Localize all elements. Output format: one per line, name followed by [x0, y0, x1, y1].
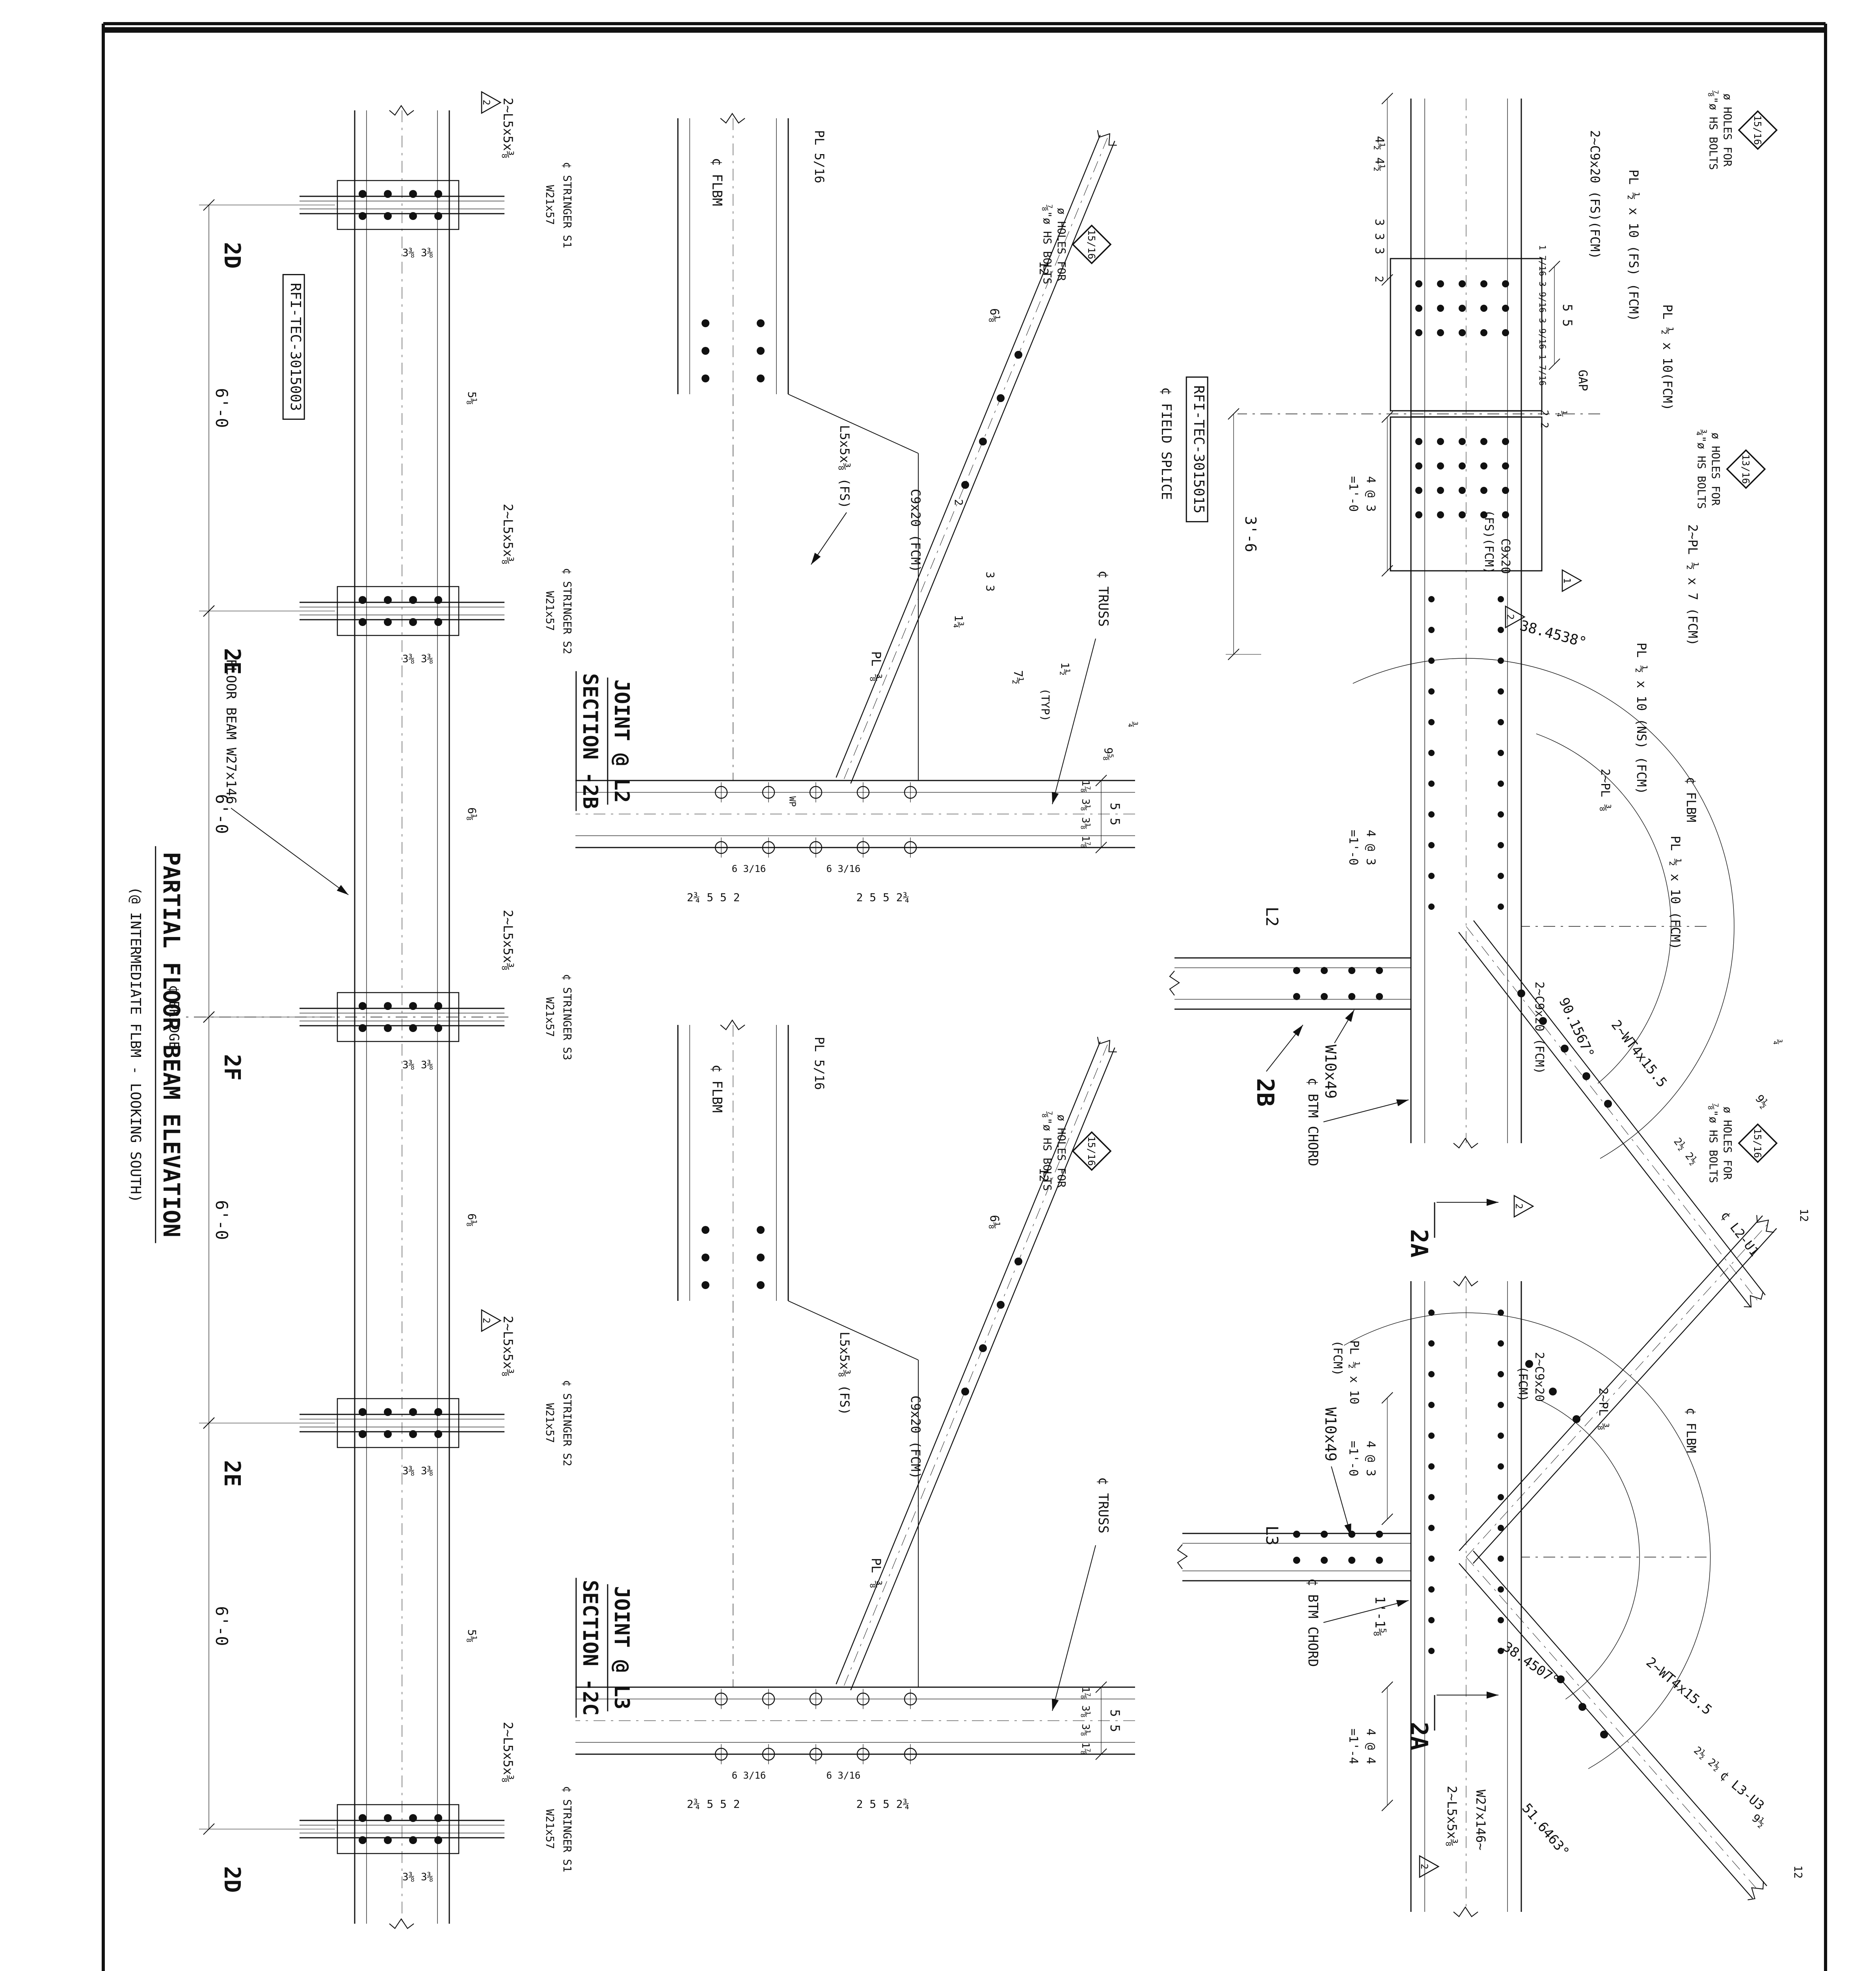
- bolt-icon: [1428, 1371, 1435, 1377]
- break-mark-icon: [720, 114, 745, 123]
- drawing-label: W10x49: [1322, 1407, 1339, 1461]
- bolt-icon: [359, 212, 367, 220]
- bolt-icon: [1428, 596, 1435, 602]
- bolt-icon: [1502, 487, 1509, 494]
- drawing-label: 51.6463°: [1519, 1800, 1572, 1860]
- drawing-line: [851, 141, 1115, 784]
- break-mark-icon: [389, 106, 414, 115]
- drawing-label: FLOOR BEAM W27x146: [223, 659, 239, 804]
- bolt-icon: [409, 1002, 417, 1010]
- drawing-label: 3⅜ 3⅜: [402, 653, 433, 665]
- bolt-icon: [359, 1024, 367, 1032]
- drawing-label: 2 2: [1538, 410, 1550, 428]
- bolt-icon: [1600, 1731, 1608, 1738]
- drawing-label: 4 @ 4: [1364, 1729, 1377, 1764]
- drawing-label: 6⅛: [987, 1215, 1001, 1229]
- bolt-icon: [702, 374, 709, 382]
- bolt-icon: [1428, 719, 1435, 725]
- bolt-icon: [1428, 811, 1435, 818]
- drawing-label: W21x57: [543, 997, 556, 1037]
- leader-arrowhead-icon: [337, 885, 348, 895]
- drawing-label: 1'-1⅝: [1372, 1596, 1388, 1636]
- bolt-icon: [1502, 305, 1509, 312]
- drawing-label: 1⅞ 3⅛ 3⅛ 1⅞: [1079, 1687, 1091, 1755]
- drawing-line: [1459, 1216, 1762, 1551]
- bolt-icon: [1502, 329, 1509, 336]
- drawing-label: C9x20 (FCM): [908, 1395, 923, 1479]
- drawing-label: 2¾ 5 5 2: [687, 891, 740, 904]
- drawing-label: PL ½ x 10 (NS) (FCM): [1634, 643, 1649, 794]
- drawing-label: 6 3/16: [826, 1770, 861, 1781]
- bolt-icon: [434, 618, 442, 626]
- drawing-label: =1'-0: [1346, 1441, 1360, 1476]
- drawing-label: 2~L5x5x⅜: [501, 1722, 516, 1783]
- break-mark-icon: [1178, 1544, 1187, 1569]
- drawing-label: ¢ FLBM: [709, 1064, 725, 1113]
- drawing-label: 13/16: [1740, 454, 1751, 484]
- drawing-label: 2~L5x5x⅜: [1444, 1786, 1459, 1846]
- bolt-icon: [1502, 280, 1509, 287]
- bolt-icon: [1415, 487, 1422, 494]
- drawing-line: [1466, 1222, 1770, 1557]
- leader-arrowhead-icon: [1396, 1099, 1409, 1106]
- drawing-label: 2~C9x20 (FCM): [1532, 982, 1546, 1074]
- break-mark-icon: [1454, 1276, 1478, 1286]
- bolt-icon: [1480, 487, 1487, 494]
- drawing-label: 5⅛: [465, 391, 478, 405]
- bolt-icon: [409, 1408, 417, 1416]
- drawing-label: SECTION -2B: [578, 673, 602, 809]
- drawing-label: ¢ TRUSS: [1095, 570, 1111, 627]
- bolt-icon: [359, 190, 367, 198]
- break-mark-icon: [1454, 1907, 1478, 1917]
- bolt-icon: [1502, 438, 1509, 445]
- bolt-icon: [1348, 967, 1355, 974]
- bolt-icon: [1498, 1586, 1504, 1593]
- bolt-icon: [1498, 1463, 1504, 1470]
- bolt-icon: [1428, 750, 1435, 756]
- bolt-icon: [1321, 967, 1328, 974]
- bolt-icon: [1459, 329, 1466, 336]
- drawing-label: 1: [1561, 578, 1573, 583]
- bolt-icon: [1498, 719, 1504, 725]
- bolt-icon: [434, 1408, 442, 1416]
- leader-arrowhead-icon: [1487, 1692, 1498, 1699]
- drawing-label: 5⅛: [465, 1629, 478, 1643]
- bolt-icon: [1293, 967, 1300, 974]
- bolt-icon: [1415, 305, 1422, 312]
- drawing-label: 3'-6: [1242, 516, 1259, 552]
- bolt-icon: [997, 394, 1005, 402]
- bolt-icon: [1498, 842, 1504, 848]
- drawing-label: 6'-0: [212, 1606, 231, 1646]
- drawing-label: WP: [787, 796, 797, 807]
- bolt-icon: [359, 596, 367, 604]
- bolt-icon: [1415, 329, 1422, 336]
- drawing-label: L3: [1262, 1526, 1282, 1546]
- drawing-label: ¢ BTM CHORD: [1305, 1077, 1321, 1166]
- drawing-label: (FS)(FCM): [1482, 510, 1496, 574]
- bolt-icon: [1428, 1494, 1435, 1500]
- drawing-label: 2¾ 5 5 2: [687, 1798, 740, 1811]
- drawing-label: 9⅝: [1102, 747, 1115, 761]
- drawing-label: W21x57: [543, 185, 556, 225]
- drawing-line: [788, 394, 918, 453]
- drawing-label: L2: [1262, 907, 1282, 927]
- bolt-icon: [1428, 1310, 1435, 1316]
- drawing-label: PL ½ x 10 (FS) (FCM): [1626, 170, 1641, 321]
- drawing-rect: [337, 1805, 459, 1854]
- drawing-label: C9x20 (FCM): [908, 489, 923, 572]
- bolt-icon: [1498, 1525, 1504, 1531]
- drawing-label: 9½: [1753, 1092, 1771, 1111]
- drawing-label: PL 5/16: [812, 1037, 827, 1090]
- bolt-icon: [1459, 280, 1466, 287]
- leader-arrowhead-icon: [811, 553, 821, 564]
- drawing-label: ¢ STRINGER S2: [561, 568, 574, 654]
- drawing-label: 2~C9x20: [1532, 1352, 1546, 1402]
- bolt-icon: [702, 1281, 709, 1289]
- bolt-icon: [1428, 1463, 1435, 1470]
- drawing-sheet: 15/16ø HOLES FOR⅞"ø HS BOLTS15/16ø HOLES…: [0, 0, 1876, 1971]
- drawing-label: W21x57: [543, 1403, 556, 1443]
- drawing-label: (TYP): [1039, 688, 1052, 721]
- drawing-label: 12: [1792, 1865, 1805, 1879]
- drawing-label: RFI-TEC-3015015: [1191, 385, 1207, 513]
- drawing-canvas: 15/16ø HOLES FOR⅞"ø HS BOLTS15/16ø HOLES…: [0, 0, 1876, 1971]
- drawing-label: ¾: [1772, 1039, 1783, 1045]
- bolt-icon: [1293, 1531, 1300, 1538]
- bolt-icon: [961, 481, 969, 489]
- bolt-icon: [384, 1430, 392, 1438]
- drawing-label: ¢ STRINGER S2: [561, 1380, 574, 1466]
- bolt-icon: [1517, 989, 1525, 997]
- bolt-icon: [1549, 1388, 1557, 1395]
- bolt-icon: [1502, 511, 1509, 518]
- drawing-label: W21x57: [543, 1809, 556, 1849]
- drawing-rect: [337, 587, 459, 635]
- bolt-icon: [702, 1254, 709, 1261]
- bolt-icon: [1428, 1340, 1435, 1347]
- drawing-line: [1052, 1545, 1096, 1711]
- drawing-label: 3 3: [984, 572, 997, 592]
- bolt-icon: [1604, 1100, 1612, 1108]
- bolt-icon: [359, 1430, 367, 1438]
- drawing-label: (FCM): [1516, 1366, 1530, 1402]
- bolt-icon: [702, 347, 709, 355]
- drawing-label: ø HOLES FOR: [1721, 93, 1734, 167]
- drawing-label: ¾"ø HS BOLTS: [1695, 429, 1708, 509]
- break-mark-icon: [389, 1919, 414, 1928]
- drawing-label: 3⅜ 3⅜: [402, 1059, 433, 1071]
- bolt-icon: [1321, 1557, 1328, 1564]
- drawing-label: ø HOLES FOR: [1709, 432, 1722, 506]
- bolt-icon: [409, 190, 417, 198]
- drawing-label: 2½ 2½: [1692, 1744, 1723, 1773]
- bolt-icon: [1459, 487, 1466, 494]
- bolt-icon: [434, 190, 442, 198]
- bolt-icon: [384, 212, 392, 220]
- bolt-icon: [384, 618, 392, 626]
- bolt-icon: [1498, 1433, 1504, 1439]
- bolt-icon: [1321, 993, 1328, 1000]
- leader-arrowhead-icon: [1052, 792, 1059, 804]
- drawing-label: PL 5/16: [812, 130, 827, 183]
- break-mark-icon: [1744, 1878, 1767, 1903]
- bolt-icon: [1498, 750, 1504, 756]
- drawing-label: RFI-TEC-3015003: [287, 283, 303, 411]
- drawing-label: 2D: [219, 1866, 245, 1893]
- bolt-icon: [1498, 1402, 1504, 1408]
- drawing-label: 1½: [1059, 662, 1072, 676]
- bolt-icon: [1437, 511, 1444, 518]
- drawing-label: W21x57: [543, 591, 556, 631]
- drawing-label: 2: [481, 1318, 492, 1323]
- drawing-label: ¢ FLBM: [1684, 1407, 1699, 1453]
- bolt-icon: [1498, 873, 1504, 879]
- drawing-label: ⅞"ø HS BOLTS: [1707, 1103, 1720, 1183]
- drawing-label: ⅞"ø HS BOLTS: [1707, 90, 1720, 170]
- drawing-label: 4½ 4½: [1372, 136, 1386, 171]
- drawing-label: ¢ TRUSS: [1095, 1477, 1111, 1533]
- drawing-rect: [337, 181, 459, 229]
- drawing-label: SECTION -2C: [578, 1580, 602, 1716]
- drawing-label: ¢ STRINGER S1: [561, 162, 574, 248]
- drawing-label: ¢ L2-U1: [1718, 1208, 1762, 1259]
- drawing-label: L5x5x⅜ (FS): [837, 425, 852, 509]
- rotated-sheet-container: 15/16ø HOLES FOR⅞"ø HS BOLTS15/16ø HOLES…: [0, 0, 1876, 1971]
- bolt-icon: [1428, 1586, 1435, 1593]
- bolt-icon: [1459, 305, 1466, 312]
- drawing-label: 2~WT4x15.5: [1643, 1654, 1715, 1718]
- drawing-label: 6 3/16: [732, 863, 766, 874]
- bolt-icon: [1437, 280, 1444, 287]
- drawing-label: (@ INTERMEDIATE FLBM - LOOKING SOUTH): [127, 887, 143, 1203]
- bolt-icon: [1428, 1648, 1435, 1654]
- bolt-icon: [1348, 1557, 1355, 1564]
- bolt-icon: [1480, 462, 1487, 469]
- bolt-icon: [961, 1388, 969, 1395]
- drawing-label: 15/16: [1086, 229, 1097, 259]
- drawing-label: 38.4507°: [1500, 1639, 1562, 1689]
- drawing-label: 2~L5x5x⅜: [501, 504, 516, 564]
- drawing-label: 4 @ 3: [1364, 1441, 1377, 1476]
- drawing-label: 3⅜ 3⅜: [402, 1465, 433, 1477]
- drawing-label: 3 3 3: [1372, 219, 1386, 254]
- drawing-label: 6 3/16: [826, 863, 861, 874]
- drawing-line: [1323, 1600, 1409, 1623]
- bolt-icon: [1014, 351, 1022, 359]
- leader-arrowhead-icon: [1293, 1025, 1303, 1036]
- bolt-icon: [1415, 438, 1422, 445]
- bolt-icon: [757, 319, 765, 327]
- drawing-label: 2: [1419, 1864, 1430, 1869]
- bolt-icon: [1498, 1310, 1504, 1316]
- drawing-label: 5 5: [1107, 803, 1122, 825]
- bolt-icon: [1480, 329, 1487, 336]
- drawing-label: 2: [952, 499, 965, 506]
- drawing-label: ¢ L3-U3: [1717, 1768, 1767, 1813]
- bolt-icon: [1498, 1556, 1504, 1562]
- bolt-icon: [1459, 511, 1466, 518]
- bolt-icon: [1480, 305, 1487, 312]
- drawing-line: [1473, 1551, 1767, 1886]
- drawing-label: 2~L5x5x⅜: [501, 98, 516, 158]
- bolt-icon: [409, 1836, 417, 1844]
- bolt-icon: [1428, 1525, 1435, 1531]
- bolt-icon: [1578, 1703, 1586, 1711]
- bolt-icon: [384, 596, 392, 604]
- bolt-icon: [1428, 627, 1435, 633]
- bolt-icon: [1573, 1415, 1580, 1423]
- drawing-label: ¼: [1556, 411, 1569, 417]
- bolt-icon: [1582, 1072, 1590, 1080]
- bolt-icon: [1428, 1617, 1435, 1623]
- drawing-label: 6⅛: [987, 308, 1001, 322]
- bolt-icon: [1480, 438, 1487, 445]
- drawing-label: 2~WT4x15.5: [1608, 1017, 1670, 1090]
- bolt-icon: [1502, 462, 1509, 469]
- break-mark-icon: [1454, 1138, 1478, 1148]
- bolt-icon: [409, 1024, 417, 1032]
- drawing-label: 5 5: [1107, 1709, 1122, 1732]
- bolt-icon: [979, 438, 987, 445]
- drawing-label: 1 7/16 3 9/16 3 9/16 1 7/16: [1537, 245, 1547, 386]
- drawing-label: 4 @ 3: [1364, 476, 1377, 512]
- bolt-icon: [409, 212, 417, 220]
- drawing-label: ø HOLES FOR: [1721, 1107, 1734, 1180]
- bolt-icon: [409, 1814, 417, 1822]
- drawing-label: 2: [1373, 276, 1386, 283]
- bolt-icon: [434, 1430, 442, 1438]
- drawing-label: 2A: [1405, 1229, 1433, 1257]
- bolt-icon: [1428, 1402, 1435, 1408]
- drawing-label: 2~C9x20 (FS)(FCM): [1588, 130, 1602, 259]
- bolt-icon: [757, 1254, 765, 1261]
- drawing-label: 7½: [1011, 670, 1025, 684]
- bolt-icon: [1498, 1494, 1504, 1500]
- bolt-icon: [434, 1002, 442, 1010]
- drawing-label: 2: [481, 100, 492, 105]
- bolt-icon: [359, 1002, 367, 1010]
- bolt-icon: [702, 319, 709, 327]
- drawing-label: ø HOLES FOR: [1055, 208, 1068, 281]
- leader-arrowhead-icon: [1345, 1010, 1354, 1022]
- drawing-label: 2~L5x5x⅜: [501, 910, 516, 971]
- drawing-label: 1¾: [952, 615, 965, 628]
- drawing-label: 2E: [219, 1460, 245, 1487]
- drawing-label: PL ⅜: [869, 1558, 884, 1588]
- bolt-icon: [359, 1836, 367, 1844]
- drawing-label: 6⅛: [465, 1213, 478, 1227]
- bolt-icon: [384, 1814, 392, 1822]
- drawing-label: 4 @ 3: [1364, 830, 1377, 865]
- drawing-label: 6'-0: [212, 1200, 231, 1240]
- drawing-label: ¢ FLBM: [1684, 777, 1699, 822]
- drawing-label: 5 5: [1560, 304, 1575, 327]
- bolt-icon: [1428, 904, 1435, 910]
- drawing-label: 2D: [219, 242, 245, 268]
- drawing-label: 2 5 5 2¾: [856, 1798, 910, 1811]
- bolt-icon: [409, 618, 417, 626]
- bolt-icon: [434, 1836, 442, 1844]
- bolt-icon: [409, 596, 417, 604]
- drawing-label: 12: [1798, 1209, 1811, 1222]
- bolt-icon: [1415, 462, 1422, 469]
- bolt-icon: [1498, 781, 1504, 787]
- bolt-icon: [359, 618, 367, 626]
- bolt-icon: [1428, 842, 1435, 848]
- bolt-icon: [1498, 658, 1504, 664]
- drawing-label: W10x49: [1322, 1045, 1339, 1099]
- bolt-icon: [1437, 329, 1444, 336]
- bolt-icon: [359, 1408, 367, 1416]
- drawing-label: 12: [1037, 1168, 1050, 1182]
- drawing-label: ¢ FIELD SPLICE: [1158, 387, 1174, 500]
- drawing-label: JOINT @ L3: [610, 1586, 633, 1709]
- bolt-icon: [1293, 1557, 1300, 1564]
- drawing-label: 1⅞ 3⅛ 3⅛ 1⅞: [1079, 780, 1091, 848]
- bolt-icon: [757, 1226, 765, 1234]
- bolt-icon: [1437, 305, 1444, 312]
- drawing-label: 2~L5x5x⅜: [501, 1316, 516, 1377]
- bolt-icon: [434, 212, 442, 220]
- bolt-icon: [384, 1002, 392, 1010]
- bolt-icon: [1459, 462, 1466, 469]
- leader-arrowhead-icon: [1052, 1699, 1059, 1711]
- bolt-icon: [1428, 1556, 1435, 1562]
- bolt-icon: [409, 1430, 417, 1438]
- drawing-label: 2~PL ⅜: [1598, 769, 1612, 811]
- drawing-label: =1'-0: [1346, 830, 1360, 865]
- bolt-icon: [1014, 1257, 1022, 1265]
- bolt-icon: [384, 1408, 392, 1416]
- drawing-label: PL ½ x 10: [1347, 1340, 1361, 1405]
- drawing-label: 6⅛: [465, 807, 478, 821]
- drawing-label: ¢ FLBM: [709, 158, 725, 206]
- drawing-label: ¢ BTM CHORD: [1305, 1578, 1321, 1667]
- bolt-icon: [1498, 688, 1504, 695]
- drawing-rect: [337, 1399, 459, 1448]
- bolt-icon: [1459, 438, 1466, 445]
- drawing-label: 9½: [1749, 1811, 1768, 1830]
- drawing-line: [1459, 1563, 1753, 1898]
- bolt-icon: [997, 1301, 1005, 1309]
- drawing-label: L5x5x⅜ (FS): [837, 1332, 852, 1415]
- drawing-label: 2: [1505, 614, 1516, 620]
- bolt-icon: [1437, 462, 1444, 469]
- bolt-icon: [1480, 280, 1487, 287]
- bolt-icon: [757, 374, 765, 382]
- bolt-icon: [434, 596, 442, 604]
- drawing-label: =1'-4: [1346, 1729, 1360, 1764]
- drawing-label: 2½ 2½: [1671, 1136, 1699, 1167]
- break-mark-icon: [1170, 971, 1179, 995]
- drawing-rect: [1390, 417, 1542, 571]
- bolt-icon: [1498, 596, 1504, 602]
- drawing-label: GAP: [1576, 370, 1589, 391]
- bolt-icon: [979, 1344, 987, 1352]
- break-mark-icon: [1094, 1033, 1120, 1056]
- bolt-icon: [1376, 1531, 1383, 1538]
- drawing-line: [851, 1048, 1115, 1690]
- bolt-icon: [1376, 1557, 1383, 1564]
- drawing-label: C9x20: [1498, 538, 1512, 574]
- bolt-icon: [1428, 658, 1435, 664]
- drawing-label: 2~PL ½ x 7 (FCM): [1685, 524, 1700, 646]
- drawing-label: 15/16: [1752, 1128, 1763, 1158]
- drawing-label: PL ½ x 10(FCM): [1660, 304, 1675, 411]
